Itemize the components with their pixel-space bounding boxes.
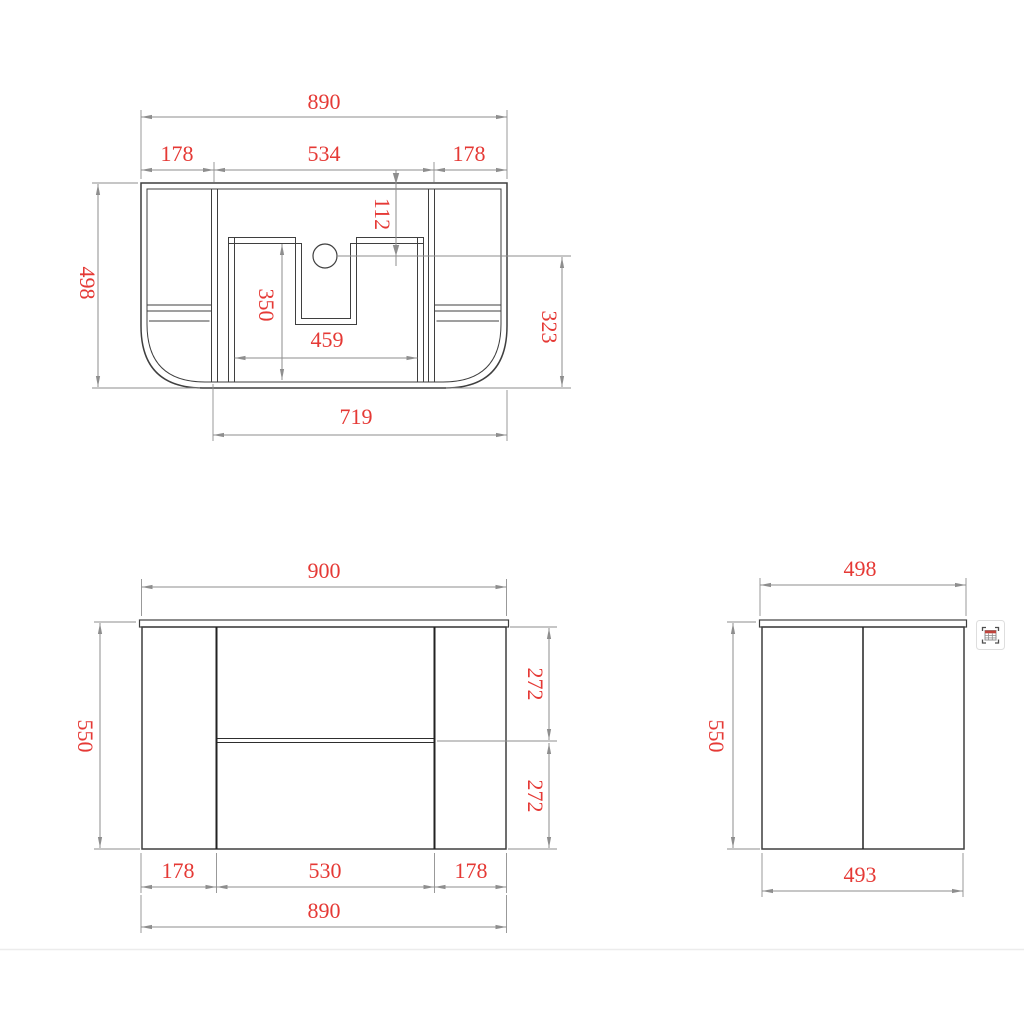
svg-text:890: 890 [308, 898, 341, 923]
front-dim-overall-width: 890 [141, 895, 507, 933]
front-dim-bottom-sections: 178 530 178 [141, 853, 507, 893]
svg-text:550: 550 [704, 720, 729, 753]
side-view: 498 550 493 [704, 556, 967, 897]
top-dim-overall-depth: 498 [75, 183, 200, 388]
svg-text:498: 498 [844, 556, 877, 581]
svg-text:493: 493 [844, 862, 877, 887]
top-view-inner-outline [147, 189, 501, 382]
svg-text:550: 550 [73, 720, 98, 753]
top-dim-cutout-depth: 350 [254, 244, 282, 380]
side-dim-height: 550 [704, 622, 760, 849]
technical-drawing-canvas: 890 178 534 178 112 498 [0, 0, 1024, 1024]
svg-text:112: 112 [370, 198, 395, 230]
front-dim-top-width: 900 [142, 558, 507, 616]
front-dim-height: 550 [73, 622, 140, 849]
side-dim-bottom-depth: 493 [762, 853, 963, 897]
faucet-hole [313, 244, 337, 268]
svg-text:178: 178 [453, 141, 486, 166]
svg-text:272: 272 [523, 668, 548, 701]
top-view-outer-outline [141, 183, 507, 388]
top-dim-hole-to-front: 323 [338, 256, 571, 388]
svg-text:178: 178 [161, 141, 194, 166]
front-view: 900 550 272 272 [73, 558, 557, 933]
top-dim-sections: 178 534 178 [141, 141, 507, 182]
svg-text:900: 900 [308, 558, 341, 583]
top-dim-hole-offset: 112 [370, 170, 399, 266]
top-dim-base-width: 719 [213, 384, 507, 441]
drawer-divider [218, 739, 434, 743]
top-dim-cutout-width: 459 [235, 327, 418, 358]
svg-text:530: 530 [309, 858, 342, 883]
svg-text:350: 350 [254, 289, 279, 322]
front-counter-top [140, 620, 509, 627]
svg-text:890: 890 [308, 89, 341, 114]
svg-text:498: 498 [75, 267, 100, 300]
svg-text:534: 534 [308, 141, 341, 166]
drawing-page: 890 178 534 178 112 498 [0, 0, 1024, 1024]
front-dim-upper-section: 272 [437, 627, 557, 741]
top-view-partitions [212, 189, 435, 382]
front-dim-lower-section: 272 [508, 743, 557, 849]
table-extract-button[interactable] [977, 621, 1005, 650]
side-dim-top-depth: 498 [760, 556, 966, 616]
svg-text:323: 323 [537, 311, 562, 344]
svg-text:272: 272 [523, 780, 548, 813]
svg-text:719: 719 [340, 404, 373, 429]
svg-text:459: 459 [311, 327, 344, 352]
side-counter-top [760, 620, 967, 627]
top-view: 890 178 534 178 112 498 [75, 89, 571, 441]
svg-text:178: 178 [455, 858, 488, 883]
svg-text:178: 178 [162, 858, 195, 883]
